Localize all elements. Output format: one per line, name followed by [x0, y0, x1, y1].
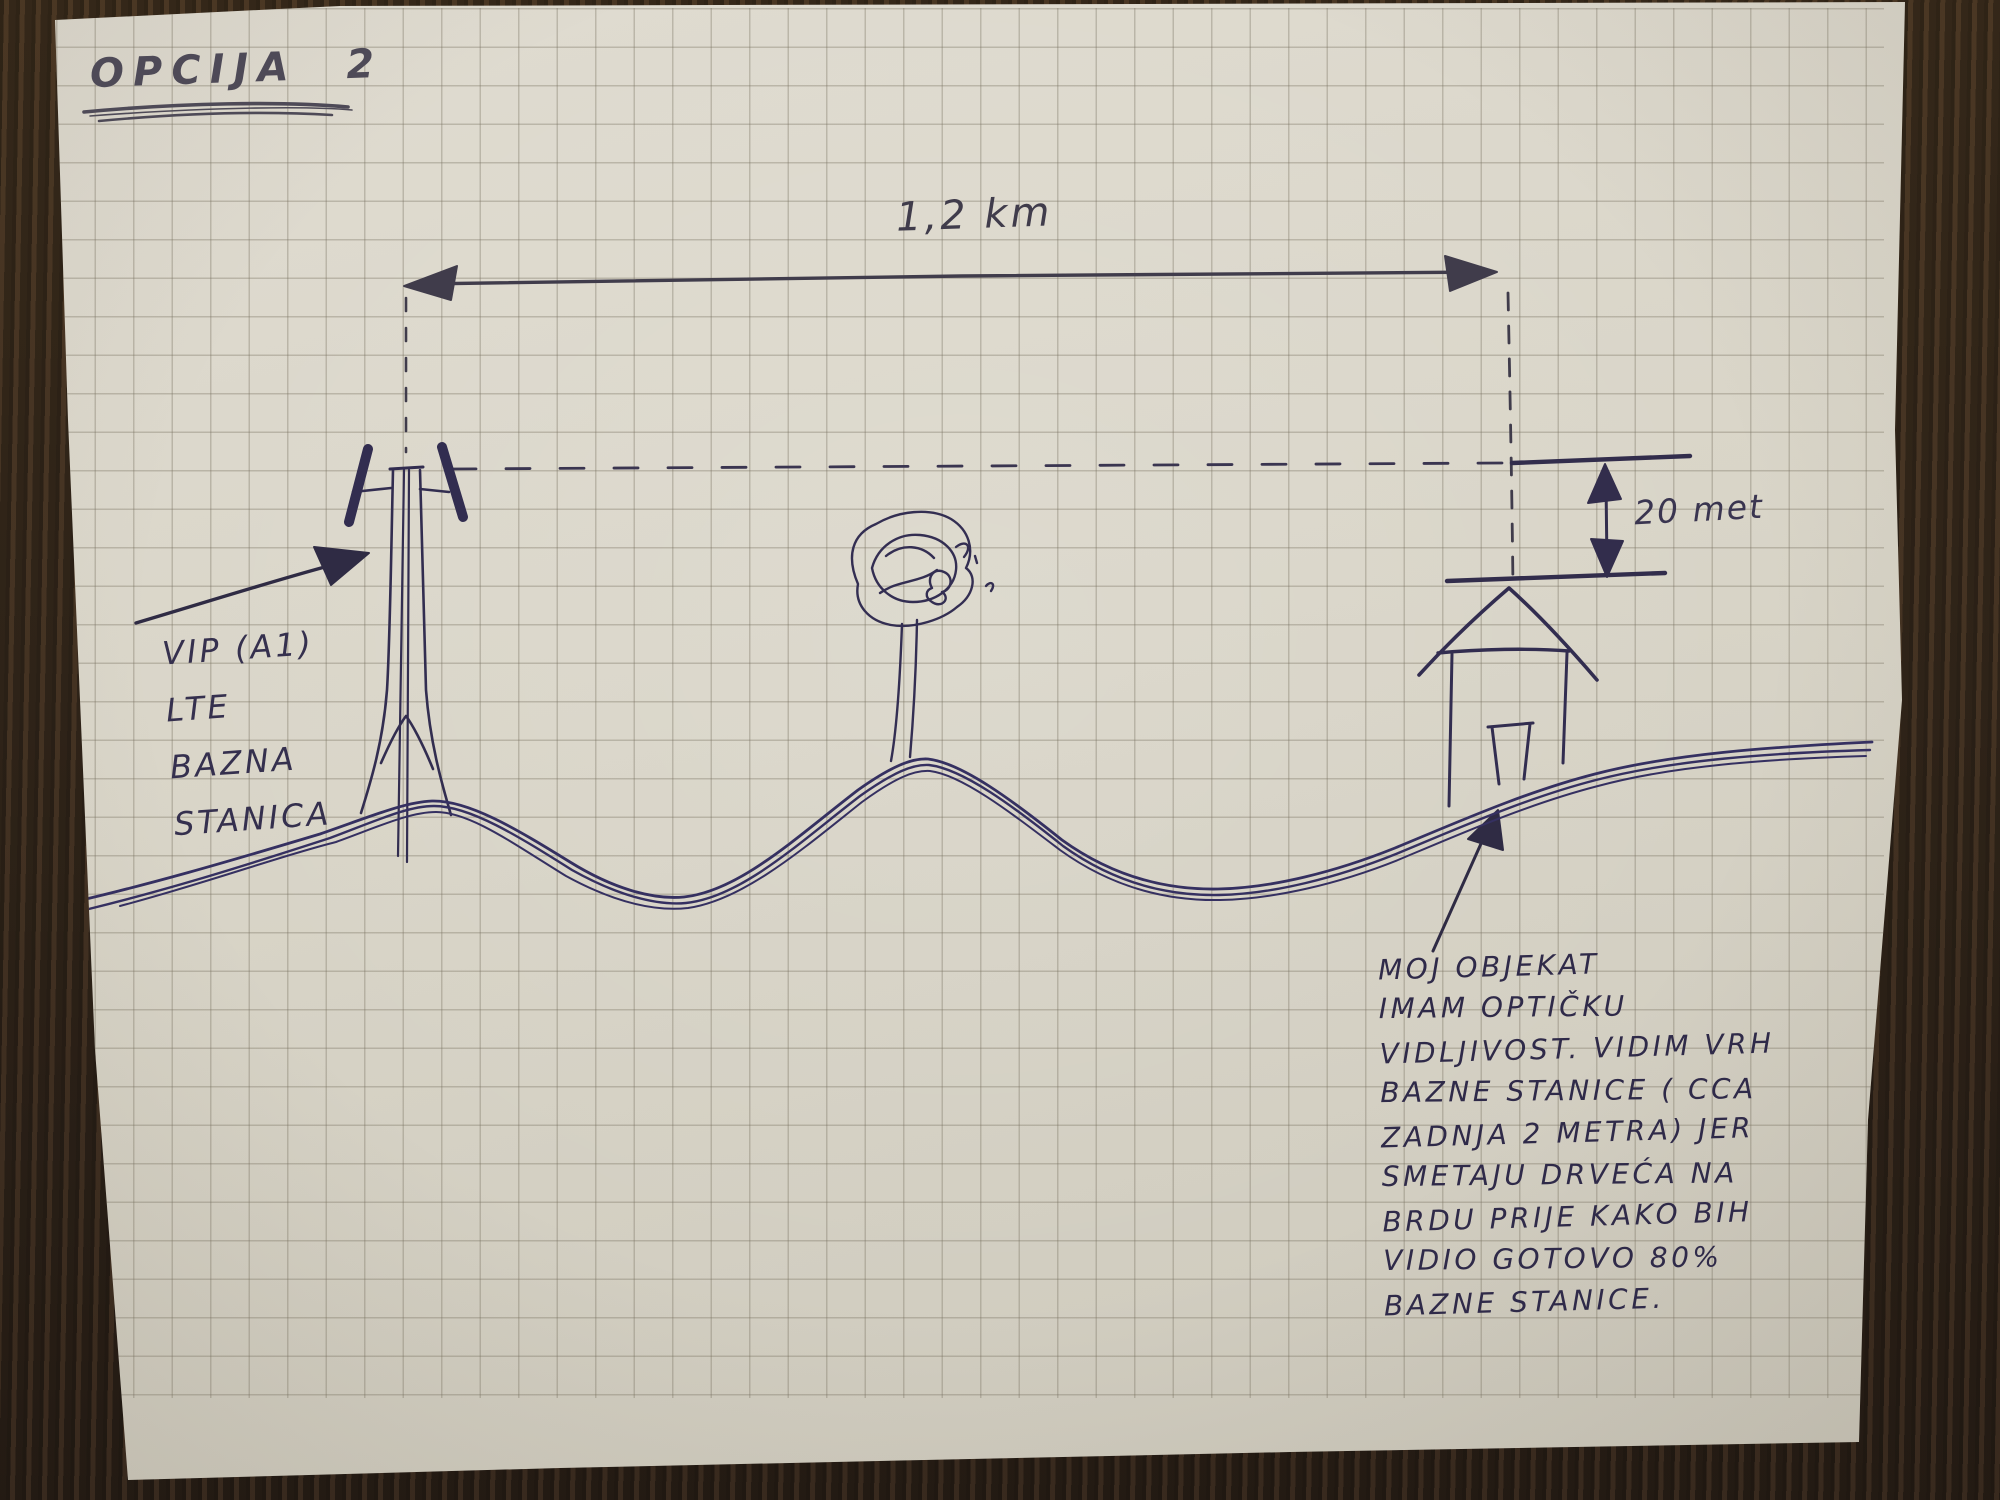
- house-door: [1488, 723, 1533, 784]
- paper-sheet: OPCIJA 2 1,2 km 20 met VIP (A1) LTE BAZN…: [0, 0, 2000, 1500]
- antenna-panel-right: [442, 447, 463, 517]
- arrow-to-tower: [136, 547, 369, 623]
- house-drawing: [1419, 588, 1597, 806]
- distance-label: 1,2 km: [895, 189, 1053, 240]
- sight-line-dashed: [452, 463, 1502, 469]
- wood-table-background: OPCIJA 2 1,2 km 20 met VIP (A1) LTE BAZN…: [0, 0, 2000, 1500]
- title-underline: [84, 104, 352, 121]
- antenna-panel-left: [349, 449, 368, 522]
- height-label: 20 met: [1633, 487, 1765, 533]
- lte-tower-drawing: [349, 447, 463, 862]
- tree-drawing: [852, 512, 993, 761]
- tower-annotation-line: VIP (A1): [160, 615, 321, 683]
- visibility-note: MOJ OBJEKAT IMAM OPTIČKU VIDLJIVOST. VID…: [1378, 941, 1780, 1326]
- tower-annotation-line: STANICA: [172, 785, 333, 853]
- distance-dimension-line: [404, 256, 1513, 588]
- tower-annotation: VIP (A1) LTE BAZNA STANICA: [160, 615, 333, 853]
- note-line: BAZNE STANICE.: [1383, 1274, 1779, 1327]
